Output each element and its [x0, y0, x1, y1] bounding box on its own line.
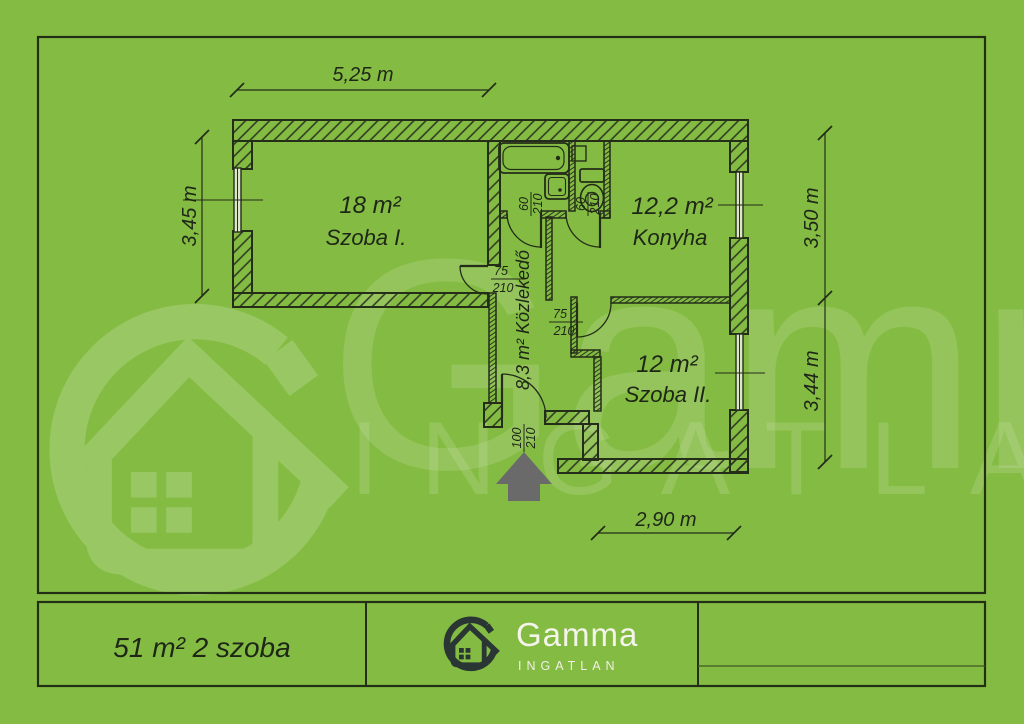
wall-entry-strip	[545, 411, 589, 424]
wall-bottom-main	[558, 459, 748, 473]
dim-right-upper-label: 3,50 m	[801, 187, 823, 248]
wall-corridor-right	[546, 217, 552, 300]
wall-szoba1-bottom	[233, 293, 488, 307]
door-szoba1-width: 75	[494, 264, 508, 278]
konyha-name-label: Konyha	[633, 225, 708, 250]
konyha-area-label: 12,2 m²	[631, 193, 713, 220]
dim-left-label: 3,45 m	[179, 185, 201, 246]
dim-right-lower-label: 3,44 m	[801, 350, 823, 411]
wall-corridor-left	[489, 293, 496, 403]
door-entrance-height: 210	[524, 428, 538, 450]
szoba2-name-label: Szoba II.	[625, 382, 712, 407]
wall-right-middle	[730, 238, 748, 334]
wall-szoba2-left-lower	[594, 357, 601, 411]
wall-konyha-szoba2	[611, 297, 730, 303]
wall-entry-connector	[583, 424, 598, 460]
kozlekedo-label: 8,3 m² Közlekedő	[513, 249, 533, 390]
wall-top	[233, 120, 748, 141]
door-wc-width: 60	[574, 197, 588, 211]
wall-right-upper	[730, 141, 748, 172]
footer-brand: Gamma	[516, 616, 638, 653]
dim-bottom-label: 2,90 m	[634, 509, 696, 531]
wall-szoba2-step	[571, 350, 600, 357]
wall-left-lower	[233, 231, 252, 293]
wall-wc-right	[604, 141, 610, 218]
footer-brand-sub: INGATLAN	[518, 659, 620, 673]
floorplan-page: Gamma INGATLAN	[0, 0, 1024, 724]
szoba1-name-label: Szoba I.	[326, 225, 407, 250]
door-szoba2-width: 75	[553, 307, 567, 321]
door-entrance-width: 100	[510, 428, 524, 449]
door-wc-height: 210	[588, 194, 602, 216]
door-bathroom-width: 60	[517, 197, 531, 211]
szoba2-area-label: 12 m²	[636, 351, 698, 378]
floorplan-canvas: Gamma INGATLAN	[0, 0, 1024, 724]
door-szoba2-height: 210	[553, 324, 575, 338]
door-bathroom-height: 210	[531, 194, 545, 216]
szoba1-area-label: 18 m²	[339, 192, 401, 219]
wall-bath-bottom-left	[500, 211, 507, 218]
dim-top-label: 5,25 m	[332, 64, 393, 86]
wall-left-upper	[233, 141, 252, 169]
door-szoba1-height: 210	[492, 281, 514, 295]
wall-corridor-foot	[484, 403, 502, 427]
footer-summary: 51 m² 2 szoba	[113, 632, 290, 663]
